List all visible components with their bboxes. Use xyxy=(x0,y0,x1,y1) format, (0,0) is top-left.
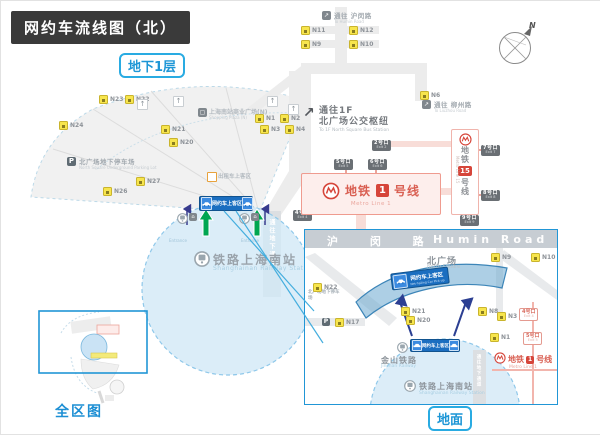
inset-metro-line1: 地铁 1 号线 xyxy=(508,354,552,365)
compass-icon xyxy=(500,26,533,64)
car-icon xyxy=(449,340,459,351)
jinshan-label-en: Jinshan Railway xyxy=(381,364,416,369)
humin-road-label: 沪 闵 路 xyxy=(327,233,438,249)
ground-inset: 沪 闵 路 Humin Road 北广场 North Square 北广场地下停… xyxy=(304,229,558,405)
overview-label: 全区图 xyxy=(55,401,103,421)
metro-line15-post: 号线 xyxy=(460,178,471,196)
metro-logo-icon xyxy=(494,352,506,364)
metro-line15-pre: 地铁 xyxy=(460,146,471,164)
railway-logo-icon xyxy=(177,213,188,224)
inset-metro-line1-pre: 地铁 xyxy=(508,354,524,365)
inset-metro-line1-post: 号线 xyxy=(536,354,552,365)
bus-hub-arrow: ↗ xyxy=(303,105,315,121)
car-icon xyxy=(242,197,253,210)
shop-icon: ▢ xyxy=(198,108,207,117)
overview-minimap xyxy=(61,312,124,403)
inset-corridor-label: 通往地下通道 xyxy=(475,354,481,402)
humin-road-label-en: Humin Road xyxy=(433,233,548,246)
parking-icon: P xyxy=(67,157,76,166)
metro-line15-number: 15 xyxy=(458,166,472,176)
pickup-sign-text: 网约车上客区 xyxy=(212,200,242,207)
exit-liuzhou-label-en: To Liuzhou Road xyxy=(434,108,466,113)
pickup-sign-text: 网约车上客区 xyxy=(422,343,449,349)
metro-line1-post: 号线 xyxy=(394,182,420,199)
metro-line1-box: 地铁 1 号线 Metro Line 1 xyxy=(301,173,441,215)
taxi-label: 出租车上客区 xyxy=(218,172,251,180)
metro-logo-icon xyxy=(459,133,472,146)
metro-line1-en: Metro Line 1 xyxy=(351,201,391,207)
metro-line15-box: 地铁 15 号线 Metro Line 15 xyxy=(451,129,479,215)
bus-hub-line2: 北广场公交枢纽 xyxy=(319,117,389,128)
station-name-en: Shanghainan Railway Station xyxy=(213,265,314,272)
page-title: 网约车流线图（北） xyxy=(11,11,190,44)
compass-n-label: N xyxy=(529,21,536,30)
exit-humin-label-en: To Humin Road xyxy=(334,19,364,24)
parking-label-en: North Square Underground Parking Lot xyxy=(79,165,157,170)
metro-line1-number: 1 xyxy=(376,184,389,197)
stairs-icon: ↗ xyxy=(422,100,431,109)
railway-logo-icon xyxy=(404,380,416,392)
parking-icon: P xyxy=(322,318,330,326)
metro-logo-icon xyxy=(322,182,340,200)
ground-label: 地面 xyxy=(428,406,472,431)
car-icon xyxy=(201,197,212,210)
station-dome xyxy=(142,203,314,375)
floor-label: 地下1层 xyxy=(119,53,185,78)
inset-metro-line1-en: Metro Line 1 xyxy=(509,365,537,370)
metro-line1-pre: 地铁 xyxy=(345,182,371,199)
car-icon xyxy=(412,340,422,351)
metro-line15-en: Metro Line 15 xyxy=(455,156,460,183)
pickup-sign-ground: 网约车上客区 xyxy=(410,339,460,352)
entrance-label: Entrance xyxy=(241,238,259,243)
flow-map-page: N23N22N24N21N20N27N26N11N12N9N10N6N1N2N3… xyxy=(0,0,600,435)
railway-entrance-icon: ⌂ xyxy=(177,213,197,224)
commercial-label-en: Shopping Plaza (N) xyxy=(209,115,247,120)
inset-flow-arrows xyxy=(400,302,466,336)
inset-parking-label: 北广场地下停车场 xyxy=(308,290,342,302)
pickup-sign-main: 网约车上客区 xyxy=(199,196,253,211)
bus-hub-en: To 1F North Square Bus Station xyxy=(319,128,389,133)
inset-metro-line1-number: 1 xyxy=(526,356,534,364)
railway-entrance-icon: ⌂ xyxy=(239,213,259,224)
railway-logo-icon xyxy=(194,251,210,267)
stairs-icon: ↗ xyxy=(322,11,331,20)
railway-logo-icon xyxy=(397,342,408,353)
bus-hub-line1: 通往1F xyxy=(319,106,353,117)
taxi-icon xyxy=(207,172,217,182)
railway-logo-icon xyxy=(239,213,250,224)
entrance-label: Entrance xyxy=(169,238,187,243)
